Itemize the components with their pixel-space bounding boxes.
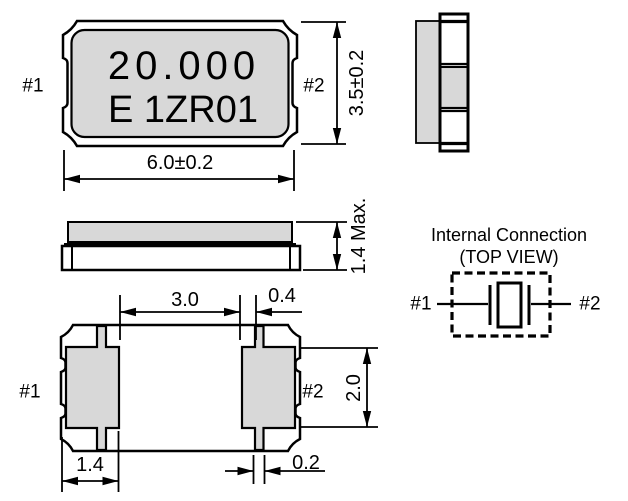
pad-width-dim-text: 1.4 bbox=[76, 454, 104, 476]
bottom-view-pin2-label: #2 bbox=[302, 382, 323, 403]
arrowhead-down-icon bbox=[333, 254, 341, 270]
internal-connection-subtitle: (TOP VIEW) bbox=[459, 247, 558, 267]
end-view-lid bbox=[416, 21, 440, 143]
side-view-base bbox=[62, 246, 300, 270]
arrowhead-up-icon bbox=[333, 22, 341, 38]
marking-code: E 1ZR01 bbox=[108, 89, 258, 131]
bottom-view: #1 #2 3.0 0.4 2.0 bbox=[19, 285, 378, 492]
dimension-thickness: 1.4 Max. bbox=[296, 198, 370, 275]
arrowhead-left-icon bbox=[265, 467, 281, 475]
pad-gap-dim-text: 3.0 bbox=[171, 289, 199, 311]
internal-connection: Internal Connection (TOP VIEW) #1 #2 bbox=[410, 225, 600, 336]
height-dim-text: 3.5±0.2 bbox=[346, 50, 368, 117]
drawing-canvas: 20.000 E 1ZR01 #1 #2 3.5±0.2 6.0±0.2 bbox=[0, 0, 628, 501]
arrowhead-left-icon bbox=[64, 175, 80, 183]
arrowhead-down-icon bbox=[363, 411, 371, 427]
internal-connection-pin1-label: #1 bbox=[410, 294, 431, 315]
arrowhead-right-icon bbox=[278, 175, 294, 183]
side-view: 1.4 Max. bbox=[62, 198, 370, 275]
end-view-seal-band bbox=[442, 68, 467, 107]
dimension-castellation-width: 0.2 bbox=[225, 452, 325, 484]
top-view-pin1-label: #1 bbox=[22, 76, 43, 97]
side-view-lid bbox=[68, 222, 292, 242]
bottom-view-pin1-label: #1 bbox=[19, 382, 40, 403]
internal-connection-pin2-label: #2 bbox=[579, 294, 600, 315]
marking-frequency: 20.000 bbox=[108, 44, 260, 88]
arrowhead-right-icon bbox=[224, 308, 240, 316]
arrowhead-left-icon bbox=[120, 308, 136, 316]
dimension-width: 6.0±0.2 bbox=[64, 150, 294, 191]
arrowhead-left-icon bbox=[256, 308, 272, 316]
internal-connection-title: Internal Connection bbox=[431, 225, 587, 245]
package-drawing: 20.000 E 1ZR01 #1 #2 3.5±0.2 6.0±0.2 bbox=[0, 0, 628, 501]
width-dim-text: 6.0±0.2 bbox=[147, 152, 214, 174]
arrowhead-down-icon bbox=[333, 128, 341, 144]
arrowhead-left-icon bbox=[62, 477, 78, 485]
arrowhead-right-icon bbox=[238, 467, 254, 475]
end-view bbox=[416, 14, 468, 151]
pad-height-dim-text: 2.0 bbox=[343, 374, 365, 402]
arrowhead-up-icon bbox=[333, 222, 341, 238]
thickness-dim-text: 1.4 Max. bbox=[348, 198, 370, 275]
top-view: 20.000 E 1ZR01 #1 #2 3.5±0.2 6.0±0.2 bbox=[22, 21, 368, 191]
top-view-pin2-label: #2 bbox=[303, 76, 324, 97]
castellation-offset-dim-text: 0.4 bbox=[268, 285, 296, 307]
castellation-width-dim-text: 0.2 bbox=[292, 452, 320, 474]
arrowhead-right-icon bbox=[103, 477, 119, 485]
arrowhead-up-icon bbox=[363, 348, 371, 364]
